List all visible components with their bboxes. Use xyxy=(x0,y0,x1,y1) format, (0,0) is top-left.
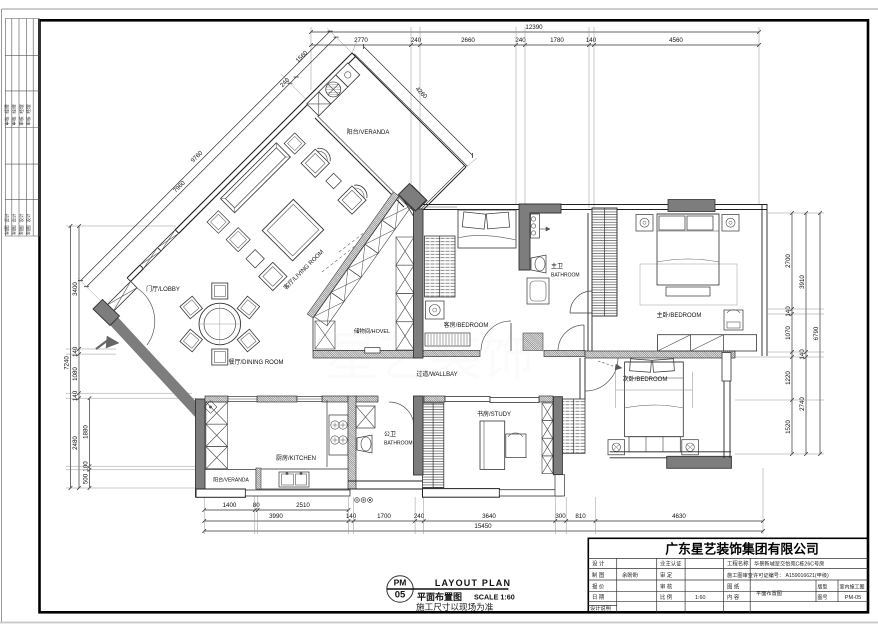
svg-text:次卧/BEDROOM: 次卧/BEDROOM xyxy=(623,375,668,383)
svg-text:12390: 12390 xyxy=(525,24,543,31)
svg-text:广东星艺装饰集团有限公司: 广东星艺装饰集团有限公司 xyxy=(665,542,819,557)
svg-text:审 定: 审 定 xyxy=(660,571,673,579)
svg-text:审核: 审核 xyxy=(4,116,11,126)
svg-text:比 例: 比 例 xyxy=(660,593,672,601)
svg-text:公卫: 公卫 xyxy=(384,431,396,438)
svg-text:240: 240 xyxy=(515,37,526,44)
svg-text:经理: 经理 xyxy=(10,104,16,114)
svg-text:设计: 设计 xyxy=(18,213,25,223)
svg-text:审核: 审核 xyxy=(11,116,18,126)
svg-text:内 容: 内 容 xyxy=(727,593,740,601)
svg-text:4560: 4560 xyxy=(669,37,683,44)
svg-text:图 纸: 图 纸 xyxy=(727,583,740,591)
svg-text:余盼盼: 余盼盼 xyxy=(622,571,639,579)
svg-text:门厅/LOBBY: 门厅/LOBBY xyxy=(146,285,180,293)
svg-text:140: 140 xyxy=(72,390,79,401)
svg-text:1400: 1400 xyxy=(223,502,237,509)
svg-text:主卧/BEDROOM: 主卧/BEDROOM xyxy=(657,311,702,319)
svg-text:书房/STUDY: 书房/STUDY xyxy=(477,410,511,418)
svg-text:05: 05 xyxy=(395,590,406,601)
svg-text:140: 140 xyxy=(799,349,806,360)
svg-text:15450: 15450 xyxy=(474,523,492,530)
svg-text:1880: 1880 xyxy=(83,425,90,439)
svg-text:平面布置图: 平面布置图 xyxy=(756,589,782,597)
svg-text:制图: 制图 xyxy=(18,225,25,235)
svg-text:6790: 6790 xyxy=(813,326,820,340)
svg-text:制图: 制图 xyxy=(4,225,11,235)
svg-text:制图: 制图 xyxy=(11,225,18,235)
svg-text:500: 500 xyxy=(83,473,90,484)
svg-text:餐厅/DINING ROOM: 餐厅/DINING ROOM xyxy=(229,358,284,366)
svg-text:日 期: 日 期 xyxy=(592,594,604,601)
svg-text:主卫: 主卫 xyxy=(551,262,563,270)
svg-text:2660: 2660 xyxy=(461,37,475,44)
svg-text:PM: PM xyxy=(394,578,407,588)
svg-text:工程名称: 工程名称 xyxy=(727,560,749,568)
svg-text:SCALE 1:60: SCALE 1:60 xyxy=(474,593,515,602)
svg-text:经理: 经理 xyxy=(4,104,10,114)
svg-text:1220: 1220 xyxy=(785,371,792,385)
svg-text:PM-05: PM-05 xyxy=(845,595,861,601)
svg-text:报 价: 报 价 xyxy=(592,583,605,591)
svg-text:星艺装饰: 星艺装饰 xyxy=(326,329,534,387)
svg-text:3400: 3400 xyxy=(72,282,79,296)
svg-text:客房/BEDROOM: 客房/BEDROOM xyxy=(444,321,489,329)
svg-text:1070: 1070 xyxy=(785,326,792,340)
svg-text:LAYOUT PLAN: LAYOUT PLAN xyxy=(435,578,511,588)
svg-text:1520: 1520 xyxy=(785,420,792,434)
svg-text:设计: 设计 xyxy=(10,213,17,223)
svg-text:1700: 1700 xyxy=(377,513,391,520)
svg-text:1:60: 1:60 xyxy=(695,595,706,601)
svg-text:3990: 3990 xyxy=(269,513,283,520)
svg-text:3910: 3910 xyxy=(799,275,806,289)
svg-text:制图: 制图 xyxy=(25,225,32,235)
svg-text:审核: 审核 xyxy=(25,116,32,126)
svg-text:平面布置图: 平面布置图 xyxy=(417,591,462,602)
svg-text:经理: 经理 xyxy=(25,104,31,114)
svg-text:设 计: 设 计 xyxy=(592,560,605,568)
svg-text:业主认证: 业主认证 xyxy=(660,560,682,568)
svg-text:施工尺寸以现场为准: 施工尺寸以现场为准 xyxy=(416,601,494,612)
svg-text:240: 240 xyxy=(414,513,425,520)
svg-text:140: 140 xyxy=(72,346,79,357)
svg-text:2700: 2700 xyxy=(785,254,792,268)
svg-text:140: 140 xyxy=(586,37,597,44)
svg-text:1780: 1780 xyxy=(550,37,564,44)
svg-text:810: 810 xyxy=(575,513,586,520)
svg-text:2510: 2510 xyxy=(296,502,310,509)
svg-text:设计: 设计 xyxy=(4,213,11,223)
svg-text:阳台/VERANDA: 阳台/VERANDA xyxy=(347,128,390,136)
svg-text:阳台/VERANDA: 阳台/VERANDA xyxy=(213,477,249,484)
svg-text:审 核: 审 核 xyxy=(660,583,673,591)
svg-text:140: 140 xyxy=(346,513,357,520)
svg-text:2480: 2480 xyxy=(72,436,79,450)
svg-text:经理: 经理 xyxy=(18,104,24,114)
svg-text:4630: 4630 xyxy=(672,513,686,520)
svg-text:1080: 1080 xyxy=(72,367,79,381)
svg-text:2740: 2740 xyxy=(799,397,806,411)
svg-text:施工图审查许可证编号： A159016621(甲级): 施工图审查许可证编号： A159016621(甲级) xyxy=(727,571,829,579)
svg-text:设计: 设计 xyxy=(25,213,32,223)
svg-text:版型: 版型 xyxy=(818,584,828,591)
svg-text:审核: 审核 xyxy=(18,116,25,126)
svg-text:华景新城翠交怡苑C栋26C号房: 华景新城翠交怡苑C栋26C号房 xyxy=(754,560,824,568)
svg-text:图号: 图号 xyxy=(818,595,828,601)
svg-text:7240: 7240 xyxy=(64,356,71,370)
svg-text:140: 140 xyxy=(785,306,792,317)
svg-text:80: 80 xyxy=(253,502,260,509)
svg-text:BATHROOM: BATHROOM xyxy=(551,273,580,279)
svg-text:厨房/KITCHEN: 厨房/KITCHEN xyxy=(276,454,316,462)
svg-text:制 图: 制 图 xyxy=(592,571,604,579)
svg-text:3640: 3640 xyxy=(482,513,496,520)
svg-text:室内施工图: 室内施工图 xyxy=(840,584,865,591)
svg-text:300: 300 xyxy=(555,513,566,520)
svg-text:BATHROOM: BATHROOM xyxy=(384,441,413,447)
